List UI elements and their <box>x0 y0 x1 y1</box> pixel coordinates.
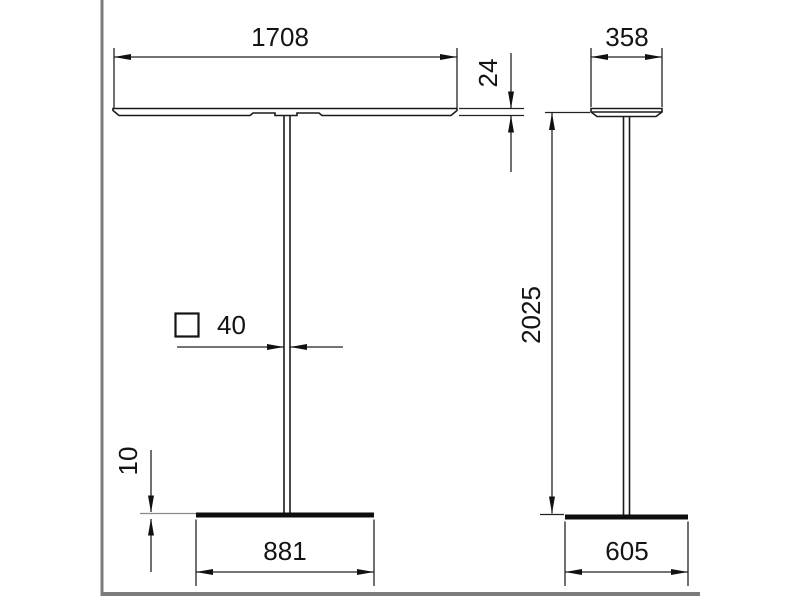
dimension-base-thickness: 10 <box>113 447 196 572</box>
arrow-left-icon <box>591 54 608 60</box>
front-pole <box>284 116 290 513</box>
front-base-plate <box>196 513 374 518</box>
side-view <box>565 109 688 520</box>
dimension-head-width: 1708 <box>114 22 457 108</box>
arrow-right-icon <box>440 54 457 60</box>
dim-base-thickness-value: 10 <box>113 447 143 476</box>
arrow-up-icon <box>148 519 154 536</box>
dimension-head-thickness: 24 <box>459 53 524 172</box>
arrow-left-icon <box>565 569 582 575</box>
side-pole <box>624 117 630 515</box>
dimension-pole-section: 40 <box>176 310 344 350</box>
arrow-down-icon <box>508 92 514 109</box>
dimension-base-depth: 605 <box>565 522 688 587</box>
dim-total-height-value: 2025 <box>516 286 546 344</box>
dim-pole-section-value: 40 <box>217 310 246 340</box>
arrow-down-icon <box>148 496 154 513</box>
arrow-right-icon <box>267 344 284 350</box>
technical-drawing: 1708 24 358 2025 40 <box>0 0 800 600</box>
dim-head-depth-value: 358 <box>605 22 648 52</box>
arrow-right-icon <box>645 54 662 60</box>
arrow-right-icon <box>357 569 374 575</box>
front-head-bar <box>113 109 457 116</box>
arrow-left-icon <box>196 569 213 575</box>
arrow-up-icon <box>508 116 514 133</box>
arrow-right-icon <box>671 569 688 575</box>
dim-base-width-value: 881 <box>263 536 306 566</box>
arrow-left-icon <box>290 344 307 350</box>
dimension-base-width: 881 <box>196 520 374 587</box>
dim-head-thickness-value: 24 <box>473 59 503 88</box>
square-section-icon <box>176 314 199 337</box>
side-base-plate <box>565 515 688 520</box>
arrow-up-icon <box>549 113 555 130</box>
drawing-page: 1708 24 358 2025 40 <box>0 0 800 600</box>
arrow-left-icon <box>114 54 131 60</box>
sheet-frame <box>101 0 701 595</box>
dimension-head-depth: 358 <box>591 22 662 107</box>
dimension-total-height: 2025 <box>516 113 590 515</box>
dim-head-width-value: 1708 <box>251 22 309 52</box>
dim-base-depth-value: 605 <box>605 536 648 566</box>
arrow-down-icon <box>549 497 555 514</box>
front-view <box>113 109 457 518</box>
